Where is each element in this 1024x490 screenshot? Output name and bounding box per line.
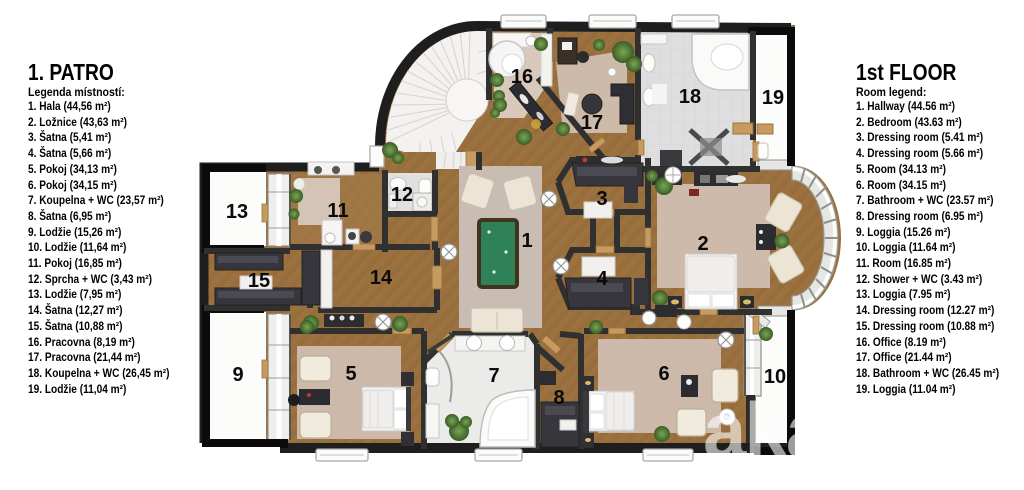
svg-text:15: 15 <box>248 270 270 292</box>
svg-text:7: 7 <box>488 365 499 387</box>
svg-text:1: 1 <box>521 230 532 252</box>
svg-text:16: 16 <box>511 66 533 88</box>
svg-text:19: 19 <box>762 87 784 109</box>
svg-text:11: 11 <box>327 200 348 222</box>
svg-text:12: 12 <box>391 184 413 206</box>
svg-text:17: 17 <box>581 112 603 134</box>
svg-text:5: 5 <box>345 363 356 385</box>
svg-text:2: 2 <box>697 233 708 255</box>
svg-text:10: 10 <box>764 366 786 388</box>
svg-text:18: 18 <box>679 86 701 108</box>
svg-text:3: 3 <box>596 188 607 210</box>
svg-text:8: 8 <box>553 387 564 409</box>
svg-text:13: 13 <box>226 201 248 223</box>
svg-text:4: 4 <box>596 268 608 290</box>
svg-text:aka: aka <box>703 386 830 474</box>
svg-text:9: 9 <box>232 364 243 386</box>
svg-text:6: 6 <box>658 363 669 385</box>
svg-text:14: 14 <box>370 267 393 289</box>
